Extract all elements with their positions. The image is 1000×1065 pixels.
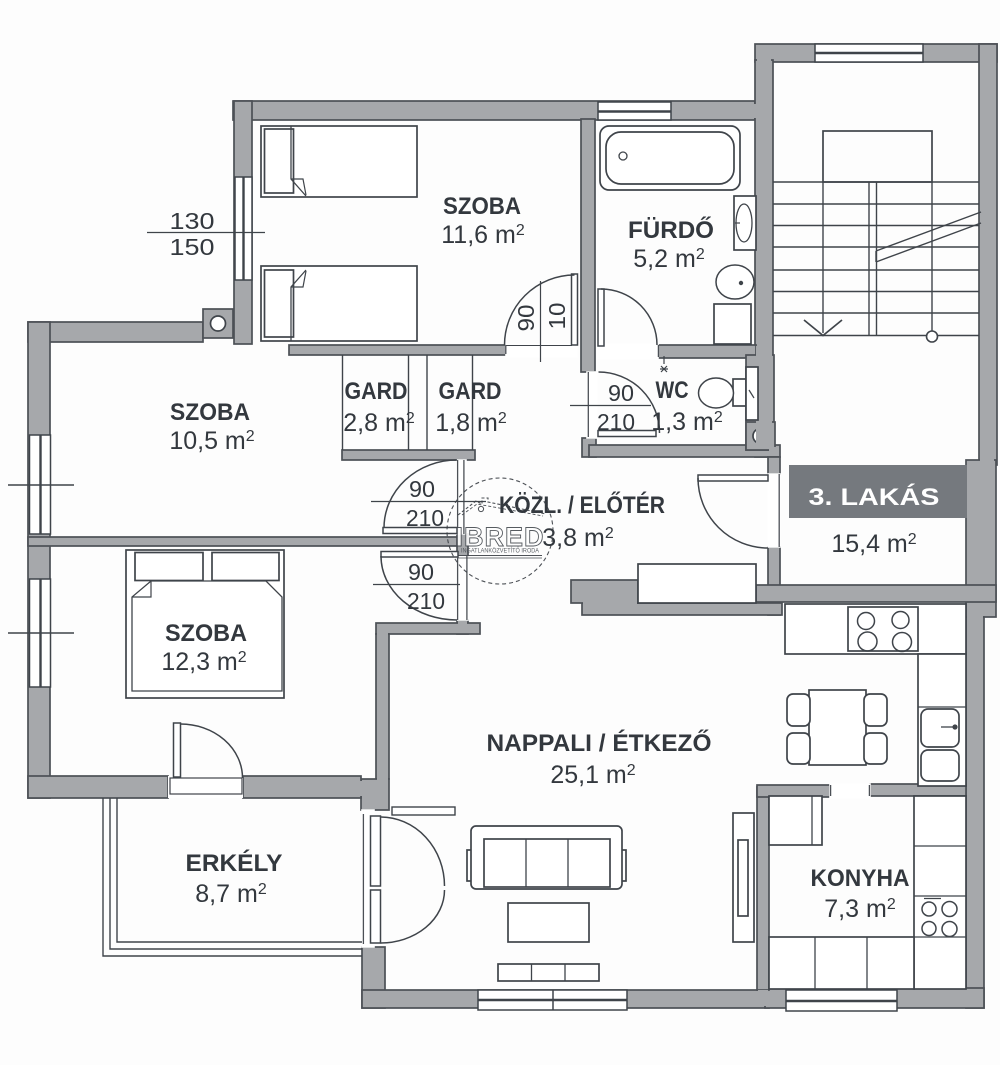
svg-text:25,1 m2: 25,1 m2	[550, 761, 635, 789]
svg-text:90: 90	[513, 305, 539, 332]
svg-text:15,4 m2: 15,4 m2	[831, 530, 916, 558]
svg-text:130: 130	[170, 208, 215, 234]
svg-text:2,8 m2: 2,8 m2	[343, 409, 415, 437]
svg-text:KONYHA: KONYHA	[811, 865, 910, 892]
svg-text:ERKÉLY: ERKÉLY	[186, 849, 283, 877]
svg-text:SZOBA: SZOBA	[165, 620, 247, 647]
svg-text:WC: WC	[656, 377, 689, 404]
svg-text:12,3 m2: 12,3 m2	[161, 648, 246, 676]
svg-text:90: 90	[408, 559, 434, 585]
svg-text:150: 150	[170, 234, 215, 260]
svg-text:210: 210	[597, 409, 635, 435]
svg-text:KÖZL. / ELŐTÉR: KÖZL. / ELŐTÉR	[499, 491, 665, 519]
svg-text:SZOBA: SZOBA	[443, 193, 521, 220]
svg-text:210: 210	[406, 505, 444, 531]
svg-text:GARD: GARD	[345, 378, 408, 405]
svg-text:210: 210	[407, 588, 445, 614]
svg-text:10: 10	[544, 303, 570, 330]
svg-text:8,7 m2: 8,7 m2	[195, 880, 267, 908]
svg-text:7,3 m2: 7,3 m2	[824, 895, 896, 923]
svg-text:3. LAKÁS: 3. LAKÁS	[809, 483, 940, 511]
svg-text:INGATLANKÖZVETÍTŐ IRODA: INGATLANKÖZVETÍTŐ IRODA	[461, 546, 540, 555]
svg-text:5,2 m2: 5,2 m2	[633, 245, 705, 273]
svg-text:NAPPALI / ÉTKEZŐ: NAPPALI / ÉTKEZŐ	[487, 729, 712, 757]
svg-text:11,6 m2: 11,6 m2	[441, 221, 525, 249]
svg-text:90: 90	[608, 380, 634, 406]
svg-text:1,3 m2: 1,3 m2	[651, 408, 723, 436]
svg-text:10,5 m2: 10,5 m2	[169, 427, 254, 455]
svg-text:GARD: GARD	[439, 378, 502, 405]
svg-text:1,8 m2: 1,8 m2	[435, 409, 507, 437]
svg-text:90: 90	[409, 476, 435, 502]
svg-text:FÜRDŐ: FÜRDŐ	[628, 216, 714, 244]
svg-text:SZOBA: SZOBA	[170, 399, 250, 426]
